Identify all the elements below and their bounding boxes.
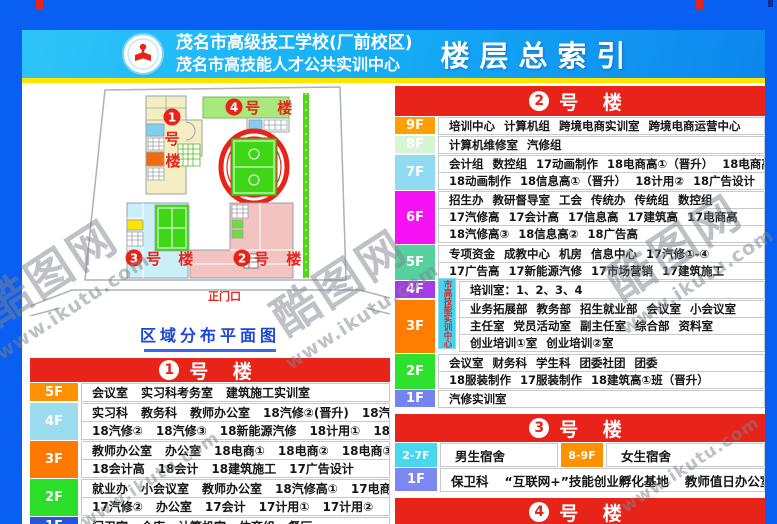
room-item: 数控组 [678, 192, 713, 208]
room-item: 汽修组 [527, 137, 562, 153]
room-item: 跨境电商运营中心 [649, 118, 741, 134]
building-4-number-badge: 4 [529, 502, 549, 522]
building-4-section: 4 号 楼 1F广播站超市充卡点 [395, 498, 765, 524]
room-item: 保卫科 [451, 471, 489, 490]
room-item: 主任室 [470, 318, 505, 334]
training-center-strip: 市高技能实训中心 [438, 278, 456, 349]
room-row: 培训中心计算机组跨境电商实训室跨境电商运营中心 [438, 117, 765, 135]
floor-label: 8F [395, 136, 435, 153]
room-item: 17电商① [351, 480, 390, 497]
svg-text:楼: 楼 [165, 152, 180, 170]
room-item: 17电商高 [687, 209, 738, 225]
floor-rooms: 门卫室仓库计算机室体育组餐厅 [81, 517, 390, 524]
room-item: 专项资金 [449, 246, 495, 262]
room-item: 18建筑高②班 [373, 422, 390, 439]
floor-row: 2F就业办小会议室教师办公室18汽修高①17电商①17汽修②办公室17会计17计… [30, 479, 390, 516]
room-row: 会计组数控组17动画制作18电商高①（晋升）18电商高② [438, 155, 765, 173]
floor-label: 2F [395, 354, 435, 389]
map-building-4-label: 4 号 楼 [226, 99, 299, 118]
poster-header: 茂名市高级技工学校(厂前校区) 茂名市高技能人才公共实训中心 楼层总索引 [22, 30, 765, 78]
room-item: 18电商高② [722, 156, 765, 172]
floor-rooms: 招生办教研督导室工会传统办传统组数控组17汽修高17会计高17信息高17建筑高1… [438, 191, 765, 244]
room-item: 副主任室 [580, 318, 626, 334]
floor-label: 3F [395, 300, 435, 353]
room-item: 17计用② [322, 498, 373, 515]
room-item: 18汽修高① [275, 480, 338, 497]
room-row: 专项资金成教中心机房信息中心17汽修①-④ [438, 245, 765, 263]
page-title: 楼层总索引 [441, 33, 636, 75]
room-item: 仓库 [141, 518, 165, 524]
floor-label: 1F [30, 517, 78, 524]
room-row: 门卫室仓库计算机室体育组餐厅 [81, 517, 390, 524]
map-caption-text: 区域分布平面图 [140, 326, 280, 345]
room-item: 招生就业部 [580, 301, 638, 317]
room-item: 教师值日办公室 [685, 471, 765, 490]
floor-row: 2F会议室财务科学生科团委社团团委18服装制作17服装制作18建筑高①班（晋升） [395, 354, 765, 389]
hanging-tick-corner [768, 0, 773, 7]
floor-row: 7F会计组数控组17动画制作18电商高①（晋升）18电商高②18动画制作18信息… [395, 155, 765, 190]
room-item: 18汽修②(晋升) [263, 404, 349, 421]
room-item: 资料室 [679, 318, 714, 334]
room-row: 女生宿舍 [606, 443, 765, 467]
svg-text:号 楼: 号 楼 [146, 250, 199, 268]
floor-rooms: 会计组数控组17动画制作18电商高①（晋升）18电商高②18动画制作18信息高①… [438, 155, 765, 190]
floor-label: 4F [30, 403, 78, 440]
floor-label: 5F [395, 245, 435, 280]
svg-text:1: 1 [168, 111, 176, 125]
map-building-1-label: 1 号 楼 [164, 109, 181, 171]
floor-label: 1F [395, 468, 437, 491]
room-row: 会议室实习科考务室建筑施工实训室 [81, 383, 390, 402]
room-item: 教研督导室 [493, 192, 551, 208]
room-item: 跨境电商实训室 [559, 118, 640, 134]
room-item: 18建筑高①班（晋升） [591, 372, 709, 388]
room-item: 创业培训①室 [470, 335, 537, 351]
room-item: 18电商③ [342, 442, 390, 459]
room-item: 17市场营销 [591, 263, 653, 279]
floor-label: 4F [395, 281, 435, 298]
room-item: 17广告设计 [289, 460, 354, 477]
room-item: 传统组 [635, 192, 670, 208]
school-name: 茂名市高级技工学校(厂前校区) 茂名市高技能人才公共实训中心 [176, 33, 413, 74]
room-item: 教师办公室 [190, 404, 250, 421]
floor-rooms: 专项资金成教中心机房信息中心17汽修①-④17广告高17新能源汽修17市场营销1… [438, 245, 765, 280]
room-item: 18电商高①（晋升） [607, 156, 713, 172]
room-item: 18广告设计 [693, 173, 755, 189]
floor-index-poster: 茂名市高级技工学校(厂前校区) 茂名市高技能人才公共实训中心 楼层总索引 [0, 0, 777, 524]
room-item: 计算机维修室 [449, 137, 518, 153]
svg-text:2: 2 [238, 252, 246, 266]
room-item: 综合部 [635, 318, 670, 334]
building-2-number-badge: 2 [529, 91, 549, 111]
room-item: 党员活动室 [514, 318, 572, 334]
room-row: 教师办公室办公室18电商①18电商②18电商③ [81, 441, 390, 460]
floor-label: 2-7F [395, 443, 437, 467]
room-row: 18汽修②18汽修③18新能源汽修18计用①18建筑高②班 [81, 421, 390, 440]
school-logo-icon [122, 33, 164, 75]
floor-label: 2F [30, 479, 78, 516]
room-item: 培训中心 [449, 118, 495, 134]
room-item: 18汽修① [362, 404, 390, 421]
floor-rooms: 汽修实训室 [438, 390, 765, 408]
poster-body: 1 号 楼 4 号 楼 2 号 楼 3 号 楼 [22, 83, 765, 524]
room-item: 计算机组 [504, 118, 550, 134]
floor-label: 5F [30, 383, 78, 401]
room-item: 成教中心 [504, 246, 550, 262]
school-name-line2: 茂名市高技能人才公共实训中心 [176, 55, 413, 75]
room-item: 17会计 [205, 498, 246, 515]
room-item: 18广告高 [588, 226, 639, 242]
building-3-header: 3 号 楼 [395, 414, 765, 442]
room-item: 教务科 [141, 404, 177, 421]
floor-row: 4F实习科教务科教师办公室18汽修②(晋升)18汽修①18汽修②18汽修③18新… [30, 403, 390, 440]
floor-rooms: 培训室：1、2、3、4 [438, 281, 765, 299]
room-item: 建筑施工实训室 [226, 384, 310, 401]
room-item: 18会计高 [92, 460, 145, 477]
room-item: 18新能源汽修 [220, 422, 297, 439]
room-row: 业务拓展部教务部招生就业部会议室小会议室 [459, 300, 765, 318]
floor-row: 1F门卫室仓库计算机室体育组餐厅 [30, 517, 390, 524]
floor-rooms: 就业办小会议室教师办公室18汽修高①17电商①17汽修②办公室17会计17计用①… [81, 479, 390, 516]
building-2-section: 2 号 楼 9F培训中心计算机组跨境电商实训室跨境电商运营中心8F计算机维修室汽… [395, 86, 765, 408]
room-item: 17汽修①-④ [646, 246, 709, 262]
floor-rooms: 培训中心计算机组跨境电商实训室跨境电商运营中心 [438, 117, 765, 135]
hanging-tick-left [36, 0, 43, 9]
svg-text:4: 4 [230, 101, 238, 115]
floor-split-row: 2-7F男生宿舍8-9F女生宿舍 [395, 443, 765, 467]
building-1-header: 1 号 楼 [30, 358, 390, 382]
room-item: 17广告高 [449, 263, 500, 279]
room-item: 小会议室 [690, 301, 736, 317]
floor-row: 1F汽修实训室 [395, 390, 765, 408]
room-item: 创业培训②室 [546, 335, 613, 351]
room-item: 汽修实训室 [449, 391, 507, 407]
room-item: “互联网+”技能创业孵化基地 [505, 471, 669, 490]
room-row: 实习科教务科教师办公室18汽修②(晋升)18汽修① [81, 403, 390, 422]
floor-row: 5F专项资金成教中心机房信息中心17汽修①-④17广告高17新能源汽修17市场营… [395, 245, 765, 280]
floor-label: 1F [395, 390, 435, 407]
building-4-header: 4 号 楼 [395, 498, 765, 524]
room-item: 18服装制作 [449, 372, 511, 388]
room-item: 18汽修③ [156, 422, 207, 439]
room-item: 会议室 [647, 301, 682, 317]
room-item: 17动画制作 [536, 156, 598, 172]
room-item: 机房 [559, 246, 582, 262]
room-row: 17广告高17新能源汽修17市场营销17建筑施工 [438, 262, 765, 280]
room-row: 18会计高18会计18建筑施工17广告设计 [81, 459, 390, 478]
room-item: 17建筑高 [628, 209, 679, 225]
room-item: 餐厅 [288, 518, 312, 524]
room-item: 18建筑施工 [211, 460, 276, 477]
building-1-name: 号 楼 [189, 357, 261, 384]
floor-rooms: 计算机维修室汽修组 [438, 136, 765, 154]
room-item: 会议室 [449, 355, 484, 371]
room-item: 18动画制作 [449, 173, 511, 189]
room-item: 17建筑施工 [662, 263, 724, 279]
map-caption: 区域分布平面图 [30, 322, 390, 352]
room-item: 信息中心 [591, 246, 637, 262]
room-item: 18信息高①（晋升） [520, 173, 626, 189]
room-item: 培训室：1、2、3、4 [470, 282, 583, 298]
svg-text:3: 3 [130, 252, 138, 266]
room-item: 传统办 [591, 192, 626, 208]
room-row: 创业培训①室创业培训②室 [459, 334, 765, 352]
floor-row: 3F教师办公室办公室18电商①18电商②18电商③18会计高18会计18建筑施工… [30, 441, 390, 478]
room-item: 17计用① [259, 498, 310, 515]
room-row: 17汽修②办公室17会计17计用①17计用② [81, 497, 390, 516]
room-item: 体育组 [239, 518, 275, 524]
room-row: 培训室：1、2、3、4 [459, 281, 765, 299]
room-item: 门卫室 [92, 518, 128, 524]
campus-map: 1 号 楼 4 号 楼 2 号 楼 3 号 楼 [30, 86, 390, 316]
room-row: 汽修实训室 [438, 390, 765, 408]
room-row: 18服装制作17服装制作18建筑高①班（晋升） [438, 371, 765, 389]
room-row: 招生办教研督导室工会传统办传统组数控组 [438, 191, 765, 209]
room-item: 17服装制作 [520, 372, 582, 388]
room-item: 18计用② [635, 173, 684, 189]
building-3-floors: 2-7F男生宿舍8-9F女生宿舍1F保卫科“互联网+”技能创业孵化基地教师值日办… [395, 443, 765, 492]
room-item: 计算机室 [178, 518, 226, 524]
map-gate-label: 正门口 [208, 289, 241, 303]
room-item: 办公室 [156, 498, 192, 515]
room-item: 18计用① [309, 422, 360, 439]
right-column: 2 号 楼 9F培训中心计算机组跨境电商实训室跨境电商运营中心8F计算机维修室汽… [395, 86, 765, 524]
building-1-floors: 5F会议室实习科考务室建筑施工实训室4F实习科教务科教师办公室18汽修②(晋升)… [30, 383, 390, 524]
room-row: 17汽修高17会计高17信息高17建筑高17电商高 [438, 208, 765, 226]
map-building-3-label: 3 号 楼 [126, 250, 200, 269]
room-item: 办公室 [165, 442, 201, 459]
room-item: 18电商② [278, 442, 329, 459]
room-item: 团委 [635, 355, 658, 371]
room-item: 17会计高 [509, 209, 560, 225]
floor-label: 8-9F [561, 443, 603, 467]
room-item: 数控组 [493, 156, 528, 172]
svg-text:号 楼: 号 楼 [245, 99, 298, 117]
room-item: 会议室 [92, 384, 128, 401]
room-item: 18汽修② [92, 422, 143, 439]
room-row: 计算机维修室汽修组 [438, 136, 765, 154]
svg-text:号: 号 [164, 130, 179, 148]
room-row: 主任室党员活动室副主任室综合部资料室 [459, 317, 765, 335]
floor-rooms: 会议室实习科考务室建筑施工实训室 [81, 383, 390, 402]
room-item: 18会计 [158, 460, 199, 477]
room-item: 17汽修高 [449, 209, 500, 225]
building-3-name: 号 楼 [559, 415, 631, 442]
room-row: 就业办小会议室教师办公室18汽修高①17电商① [81, 479, 390, 498]
floor-row: 5F会议室实习科考务室建筑施工实训室 [30, 383, 390, 402]
room-item: 18电商① [214, 442, 265, 459]
left-column: 1 号 楼 4 号 楼 2 号 楼 3 号 楼 [30, 86, 390, 524]
floor-row: 9F培训中心计算机组跨境电商实训室跨境电商运营中心 [395, 117, 765, 135]
room-item: 实习科 [92, 404, 128, 421]
svg-text:号 楼: 号 楼 [254, 250, 307, 268]
floor-row: 8F计算机维修室汽修组 [395, 136, 765, 154]
building-3-section: 3 号 楼 2-7F男生宿舍8-9F女生宿舍1F保卫科“互联网+”技能创业孵化基… [395, 414, 765, 492]
map-caption-underline [144, 349, 276, 352]
building-1-number-badge: 1 [159, 360, 179, 380]
building-2-header: 2 号 楼 [395, 86, 765, 116]
floor-rooms: 会议室财务科学生科团委社团团委18服装制作17服装制作18建筑高①班（晋升） [438, 354, 765, 389]
room-item: 招生办 [449, 192, 484, 208]
floor-rooms: 实习科教务科教师办公室18汽修②(晋升)18汽修①18汽修②18汽修③18新能源… [81, 403, 390, 440]
room-row: 18动画制作18信息高①（晋升）18计用②18广告设计 [438, 172, 765, 190]
room-item: 教务部 [537, 301, 572, 317]
room-item: 17新能源汽修 [509, 263, 583, 279]
room-item: 小会议室 [141, 480, 189, 497]
room-row: 保卫科“互联网+”技能创业孵化基地教师值日办公室 [440, 468, 765, 492]
floor-row: 1F保卫科“互联网+”技能创业孵化基地教师值日办公室 [395, 468, 765, 492]
room-item: 实习科考务室 [141, 384, 213, 401]
room-item: 教师办公室 [92, 442, 152, 459]
floor-rooms: 保卫科“互联网+”技能创业孵化基地教师值日办公室 [440, 468, 765, 492]
room-row: 18汽修高③18信息高②18广告高 [438, 225, 765, 243]
room-item: 学生科 [536, 355, 571, 371]
building-4-name: 号 楼 [559, 499, 631, 524]
map-building-2-label: 2 号 楼 [234, 250, 308, 269]
hanging-tick-right [696, 0, 703, 9]
room-item: 会计组 [449, 156, 484, 172]
floor-label: 9F [395, 117, 435, 134]
building-2-floors: 9F培训中心计算机组跨境电商实训室跨境电商运营中心8F计算机维修室汽修组7F会计… [395, 117, 765, 408]
room-item: 18信息高② [518, 226, 578, 242]
floor-row: 6F招生办教研督导室工会传统办传统组数控组17汽修高17会计高17信息高17建筑… [395, 191, 765, 244]
room-row: 会议室财务科学生科团委社团团委 [438, 354, 765, 372]
floor-label: 6F [395, 191, 435, 244]
building-2-name: 号 楼 [559, 88, 631, 115]
room-item: 工会 [559, 192, 582, 208]
room-item: 17信息高 [568, 209, 619, 225]
room-item: 17汽修② [92, 498, 143, 515]
room-item: 团委社团 [580, 355, 626, 371]
building-3-number-badge: 3 [529, 418, 549, 438]
floor-label: 3F [30, 441, 78, 478]
floor-rooms: 业务拓展部教务部招生就业部会议室小会议室主任室党员活动室副主任室综合部资料室创业… [438, 300, 765, 353]
room-item: 就业办 [92, 480, 128, 497]
building-1-section: 1 号 楼 5F会议室实习科考务室建筑施工实训室4F实习科教务科教师办公室18汽… [30, 358, 390, 524]
floor-label: 7F [395, 155, 435, 190]
room-row: 男生宿舍 [440, 443, 558, 467]
school-name-line1: 茂名市高级技工学校(厂前校区) [176, 33, 413, 54]
room-item: 财务科 [493, 355, 528, 371]
room-item: 业务拓展部 [470, 301, 528, 317]
room-item: 18汽修高③ [449, 226, 509, 242]
room-item: 教师办公室 [202, 480, 262, 497]
floor-rooms: 教师办公室办公室18电商①18电商②18电商③18会计高18会计18建筑施工17… [81, 441, 390, 478]
